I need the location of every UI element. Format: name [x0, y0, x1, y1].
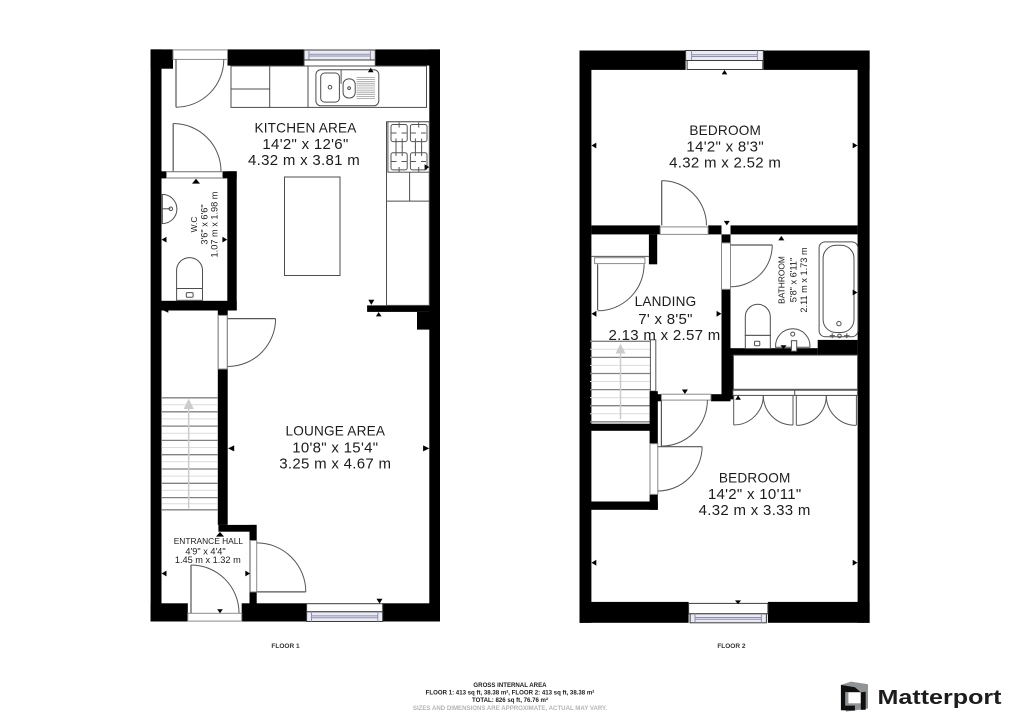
svg-text:SIZES AND DIMENSIONS ARE APPRO: SIZES AND DIMENSIONS ARE APPROXIMATE, AC…	[413, 705, 608, 712]
svg-text:W.C: W.C	[189, 217, 199, 233]
svg-text:10'8" x 15'4": 10'8" x 15'4"	[292, 439, 378, 456]
svg-text:1.07 m x 1.98 m: 1.07 m x 1.98 m	[210, 191, 220, 257]
svg-text:5'8" x 6'11": 5'8" x 6'11"	[788, 258, 798, 303]
svg-text:4.32 m x 3.33 m: 4.32 m x 3.33 m	[699, 502, 811, 519]
svg-text:14'2" x 10'11": 14'2" x 10'11"	[708, 486, 802, 503]
svg-text:ENTRANCE HALL: ENTRANCE HALL	[174, 536, 244, 546]
svg-text:FLOOR 1: FLOOR 1	[271, 643, 300, 650]
svg-text:4.32 m x 3.81 m: 4.32 m x 3.81 m	[248, 152, 360, 169]
svg-text:TOTAL: 826 sq ft, 76.76 m²: TOTAL: 826 sq ft, 76.76 m²	[472, 697, 548, 704]
svg-text:BEDROOM: BEDROOM	[719, 471, 791, 486]
svg-text:FLOOR 2: FLOOR 2	[717, 643, 746, 650]
svg-text:LANDING: LANDING	[635, 294, 697, 309]
svg-text:BEDROOM: BEDROOM	[689, 123, 761, 138]
svg-text:FLOOR 1: 413 sq ft, 38.38 m²,: FLOOR 1: 413 sq ft, 38.38 m², FLOOR 2: 4…	[426, 690, 595, 697]
svg-text:1.45 m x 1.32 m: 1.45 m x 1.32 m	[175, 555, 241, 565]
svg-text:BATHROOM: BATHROOM	[777, 256, 787, 304]
svg-text:KITCHEN AREA: KITCHEN AREA	[254, 120, 357, 135]
svg-text:Matterport: Matterport	[878, 686, 1002, 709]
svg-text:14'2" x 12'6": 14'2" x 12'6"	[262, 136, 348, 153]
svg-text:7' x 8'5": 7' x 8'5"	[638, 311, 693, 328]
svg-text:2.11 m x 1.73 m: 2.11 m x 1.73 m	[799, 247, 809, 313]
svg-text:3.25 m x 4.67 m: 3.25 m x 4.67 m	[279, 456, 391, 473]
svg-text:14'2" x 8'3": 14'2" x 8'3"	[686, 139, 764, 156]
svg-text:GROSS INTERNAL AREA: GROSS INTERNAL AREA	[473, 682, 547, 689]
svg-text:LOUNGE AREA: LOUNGE AREA	[285, 424, 385, 439]
svg-text:4.32 m x 2.52 m: 4.32 m x 2.52 m	[669, 154, 781, 171]
svg-text:3'6" x 6'6": 3'6" x 6'6"	[200, 204, 210, 244]
svg-text:2.13 m x 2.57 m: 2.13 m x 2.57 m	[608, 327, 720, 344]
